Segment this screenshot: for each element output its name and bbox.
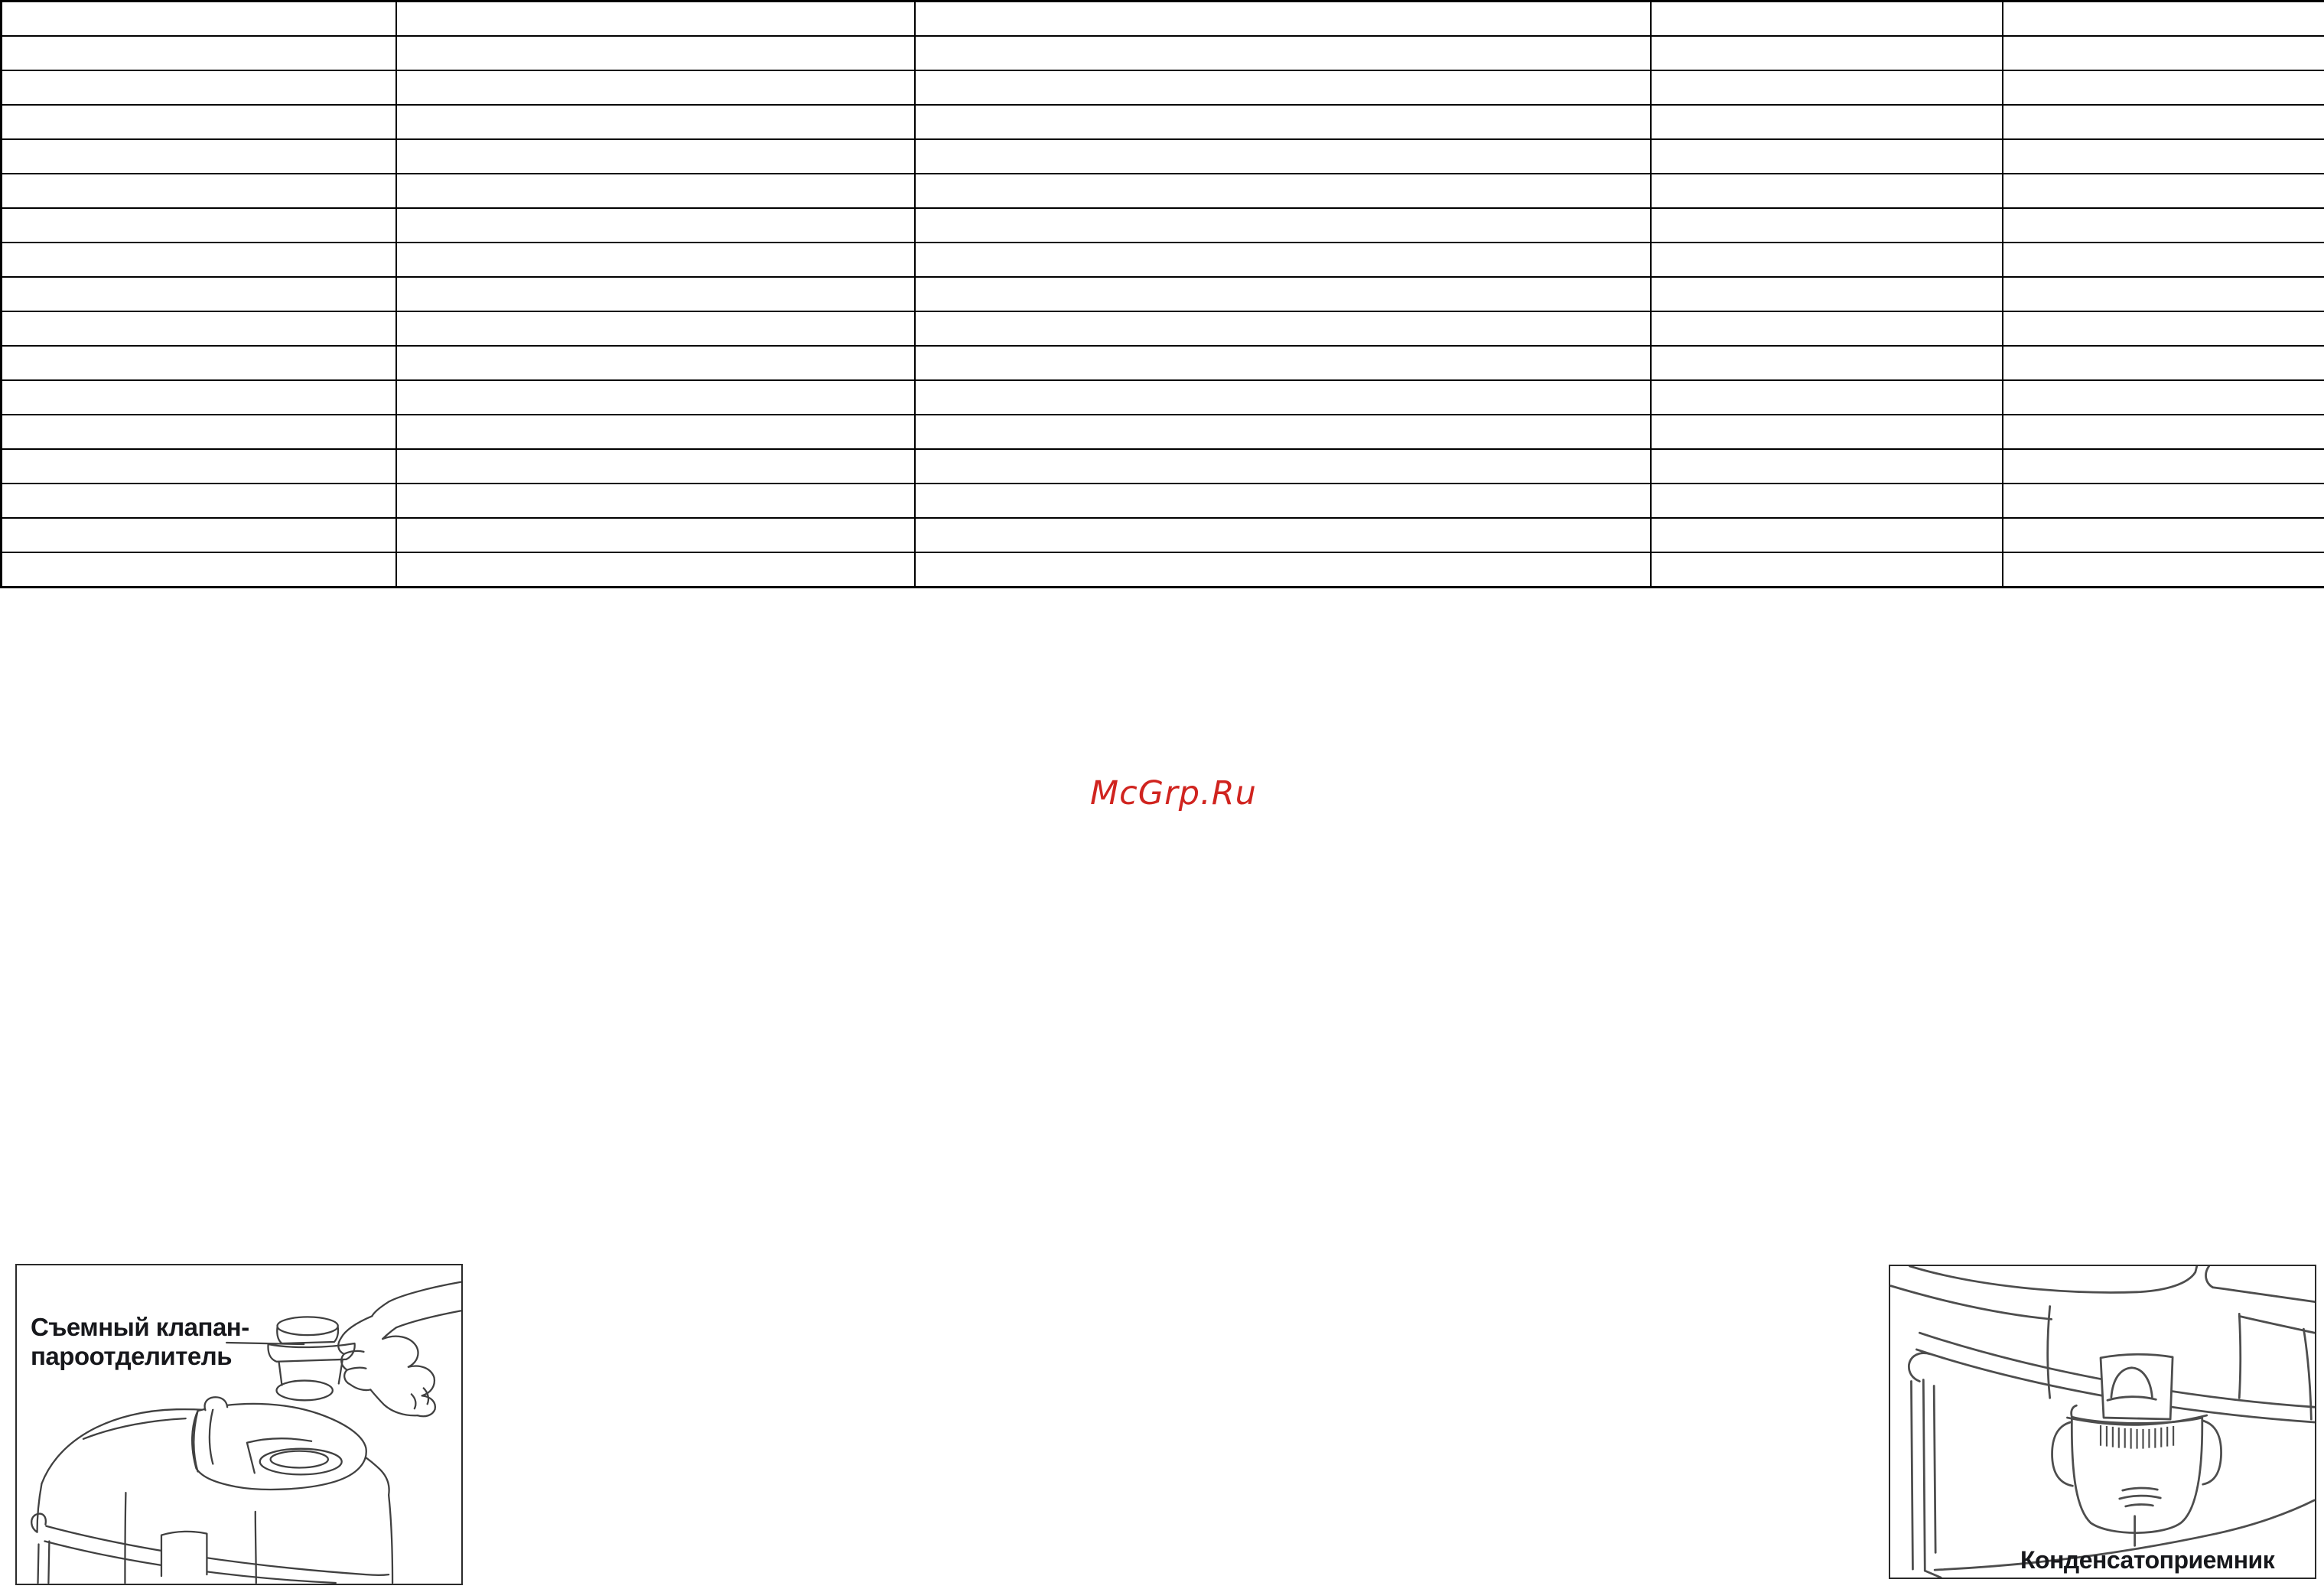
valve-bottom-opening [277,1381,333,1401]
lid-top-left-arc [1909,1266,2196,1292]
valve-cap-top [278,1317,338,1335]
table-cell [2,380,396,415]
table-cell [396,518,915,552]
table-cell [2003,346,2324,380]
table-row [2,243,2324,277]
table-cell [396,380,915,415]
table-cell [915,346,1651,380]
lid-top-right-arc [2213,1288,2315,1302]
cup-rim-flick [2072,1405,2077,1417]
table-cell [2003,518,2324,552]
cooker-left-side [37,1483,42,1532]
table-cell [1651,139,2003,174]
cooker-latch-tab [161,1532,207,1576]
table-cell [2003,208,2324,243]
hand-curl-marks [412,1388,428,1408]
lid-flap [192,1404,366,1490]
table-cell [1651,208,2003,243]
table-cell [396,174,915,208]
lid-lip-left [1891,1286,2052,1320]
table-row [2,174,2324,208]
hand-palm-bottom [370,1389,417,1415]
hand-finger-2 [408,1366,435,1396]
table-cell [2,36,396,70]
table-cell [1651,243,2003,277]
table-cell [2003,70,2324,105]
cooker-left-ear [31,1514,46,1532]
cooker-lid-arc [83,1418,186,1439]
lid-seam-notch [2206,1266,2213,1288]
table-cell [1651,518,2003,552]
table-cell [1651,346,2003,380]
table-row [2,484,2324,518]
table-row [2,311,2324,346]
table-cell [2,346,396,380]
hand-grip-contour [338,1316,372,1390]
table-cell [2,174,396,208]
table-cell [2,277,396,311]
hand-finger-3 [418,1395,435,1416]
table-cell [2003,2,2324,37]
table-cell [2,518,396,552]
hand-finger-1 [382,1337,418,1367]
table-cell [915,243,1651,277]
table-cell [2,139,396,174]
table-cell [396,243,915,277]
body-left-corner [1925,1571,1941,1578]
table-row [2,208,2324,243]
table-cell [915,415,1651,449]
table-cell [2003,552,2324,588]
panel-seam-right [2239,1314,2240,1398]
condensate-receiver-label: Конденсатоприемник [2020,1546,2274,1574]
cup-left-ear [2052,1422,2073,1486]
table-cell [915,105,1651,139]
table-row [2,449,2324,484]
table-cell [2,2,396,37]
table-cell [2,415,396,449]
table-cell [915,380,1651,415]
table-cell [396,70,915,105]
table-cell [2003,380,2324,415]
table-cell [915,484,1651,518]
table-cell [2,552,396,588]
table-row [2,36,2324,70]
table-row [2,105,2324,139]
table-cell [1651,36,2003,70]
table-cell [2,208,396,243]
table-cell [396,552,915,588]
cooker-left-foot [38,1542,50,1583]
table-cell [2003,36,2324,70]
table-cell [396,277,915,311]
table-cell [915,449,1651,484]
table-cell [1651,2,2003,37]
empty-data-table [0,0,2324,588]
panel-seam-left [2048,1306,2050,1398]
steam-valve-label: Съемный клапан- пароотделитель [31,1313,249,1371]
cooker-seam-left [125,1493,125,1583]
table-row [2,2,2324,37]
table-row [2,70,2324,105]
hand-arm-bottom [396,1311,461,1327]
table-row [2,552,2324,588]
watermark-text: McGrp.Ru [1090,774,1257,812]
table-cell [1651,277,2003,311]
table-cell [396,105,915,139]
table-cell [396,449,915,484]
body-left-hook [1909,1353,1930,1382]
table-cell [2,449,396,484]
table-cell [915,518,1651,552]
table-cell [396,2,915,37]
table-cell [396,208,915,243]
table-cell [2003,174,2324,208]
table-cell [915,2,1651,37]
table-cell [2003,311,2324,346]
table-row [2,346,2324,380]
figure-steam-valve: Съемный клапан- пароотделитель [15,1264,463,1585]
table-cell [2,105,396,139]
table-cell [396,311,915,346]
cooker-seam-right [256,1512,256,1583]
table-cell [1651,70,2003,105]
table-cell [2003,243,2324,277]
table-cell [2003,105,2324,139]
steam-valve-label-line2: пароотделитель [31,1342,249,1371]
cooker-band-upper [46,1526,389,1575]
table-cell [915,139,1651,174]
steam-valve-label-line1: Съемный клапан- [31,1313,249,1342]
cup-right-ear [2203,1421,2221,1484]
table-cell [915,174,1651,208]
table-row [2,380,2324,415]
table-row [2,139,2324,174]
table-cell [1651,449,2003,484]
table-cell [396,36,915,70]
table-cell [396,346,915,380]
table-cell [915,277,1651,311]
table-cell [2003,484,2324,518]
table-cell [1651,415,2003,449]
table-row [2,518,2324,552]
table-cell [915,70,1651,105]
hand-arm-top [372,1282,461,1317]
table-cell [915,552,1651,588]
table-row [2,277,2324,311]
table-cell [2003,449,2324,484]
latch [2101,1354,2173,1419]
table-cell [1651,552,2003,588]
table-row [2,415,2324,449]
table-cell [396,415,915,449]
table-cell [396,139,915,174]
table-cell [915,311,1651,346]
table-cell [2,243,396,277]
figure-condensate-receiver: Конденсатоприемник [1889,1265,2316,1579]
table-cell [1651,380,2003,415]
table-cell [396,484,915,518]
condensate-receiver-illustration [1890,1266,2315,1578]
table-cell [1651,174,2003,208]
table-cell [915,208,1651,243]
table-cell [1651,311,2003,346]
table-cell [2003,277,2324,311]
table-cell [2,484,396,518]
table-cell [2003,415,2324,449]
cooker-right-side [389,1495,392,1583]
table-cell [1651,484,2003,518]
body-left-edge-lines [1911,1380,1935,1571]
table-cell [2003,139,2324,174]
table-cell [2,311,396,346]
table-cell [2,70,396,105]
table-cell [915,36,1651,70]
table-cell [1651,105,2003,139]
